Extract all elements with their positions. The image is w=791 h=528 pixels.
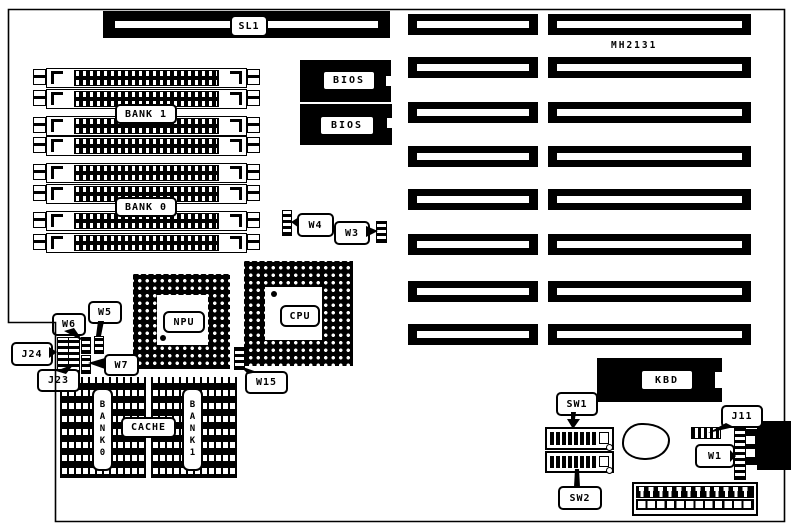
cpu-label: CPU bbox=[280, 305, 320, 327]
simm-clip-icon bbox=[51, 92, 63, 105]
cache-bank0-label: BANK0 bbox=[92, 388, 113, 471]
keyboard-din-connector bbox=[757, 421, 791, 470]
simm-clip-icon bbox=[230, 71, 242, 84]
expansion-slot bbox=[548, 57, 751, 78]
simm-pins bbox=[74, 138, 219, 154]
din-cutout bbox=[746, 449, 755, 457]
simm-clip-icon bbox=[230, 92, 242, 105]
simm-socket bbox=[46, 136, 247, 156]
expansion-slot bbox=[408, 281, 538, 302]
simm-clip-icon bbox=[51, 187, 63, 200]
dip-switch-sw2 bbox=[545, 451, 614, 473]
expansion-slot bbox=[408, 234, 538, 255]
simm-socket bbox=[46, 163, 247, 183]
board-model-text: MH2131 bbox=[611, 40, 657, 51]
dip-curl-icon bbox=[606, 467, 613, 474]
simm-clip-icon bbox=[51, 236, 63, 249]
chip-notch bbox=[386, 76, 391, 86]
oscillator-outline bbox=[622, 423, 670, 460]
expansion-slot bbox=[408, 102, 538, 123]
chip-notch bbox=[715, 372, 722, 388]
simm-pins bbox=[74, 235, 219, 251]
power-connector-pins bbox=[636, 486, 754, 498]
chip-notch bbox=[387, 118, 392, 128]
bank0-label: BANK 0 bbox=[115, 197, 177, 217]
bios-chip-1: BIOS bbox=[300, 60, 391, 102]
expansion-slot bbox=[548, 281, 751, 302]
bank1-label: BANK 1 bbox=[115, 104, 177, 124]
simm-clip-icon bbox=[230, 187, 242, 200]
expansion-slot bbox=[548, 324, 751, 345]
j11-label: J11 bbox=[721, 405, 763, 428]
cache-label: CACHE bbox=[121, 417, 176, 438]
dip-switch-sw1 bbox=[545, 427, 614, 450]
bios2-label: BIOS bbox=[321, 117, 373, 134]
w1-label: W1 bbox=[695, 444, 735, 468]
header-j11 bbox=[691, 427, 721, 439]
simm-clip-icon bbox=[230, 139, 242, 152]
jumper-w15 bbox=[234, 347, 245, 370]
expansion-slot bbox=[408, 146, 538, 167]
jumper-w6 bbox=[81, 337, 91, 354]
npu-pin1-dot bbox=[160, 335, 166, 341]
dip-last-cell bbox=[599, 432, 609, 444]
simm-socket bbox=[46, 233, 247, 253]
simm-clip-icon bbox=[51, 139, 63, 152]
power-connector bbox=[632, 482, 758, 516]
npu-chip: NPU bbox=[133, 274, 230, 369]
w3-label: W3 bbox=[334, 221, 370, 245]
kbd-chip: KBD bbox=[597, 358, 722, 402]
dip-cells bbox=[550, 456, 597, 468]
bios1-label: BIOS bbox=[324, 72, 374, 89]
dip-last-cell bbox=[599, 456, 609, 467]
expansion-slot bbox=[548, 189, 751, 210]
jumper-w7 bbox=[81, 355, 91, 374]
w15-label: W15 bbox=[245, 371, 288, 394]
sw1-label: SW1 bbox=[556, 392, 598, 416]
jumper-w3 bbox=[376, 221, 387, 243]
w7-label: W7 bbox=[104, 354, 139, 376]
dip-cells bbox=[550, 432, 597, 445]
cache-bank1-label: BANK1 bbox=[182, 388, 203, 471]
dip-curl-icon bbox=[606, 444, 613, 451]
simm-clip-icon bbox=[230, 166, 242, 179]
cpu-pin1-dot bbox=[271, 291, 277, 297]
expansion-slot bbox=[548, 14, 751, 35]
kbd-label: KBD bbox=[642, 371, 692, 389]
simm-clip-icon bbox=[51, 214, 63, 227]
expansion-slot bbox=[408, 57, 538, 78]
expansion-slot bbox=[408, 14, 538, 35]
keyboard-din-connector-left bbox=[745, 429, 758, 465]
din-cutout bbox=[746, 436, 755, 444]
expansion-slot bbox=[548, 102, 751, 123]
bios-chip-2: BIOS bbox=[300, 104, 392, 145]
simm-clip-icon bbox=[230, 214, 242, 227]
jumper-w4 bbox=[282, 210, 292, 236]
expansion-slot bbox=[408, 324, 538, 345]
simm-socket bbox=[46, 68, 247, 88]
expansion-slot bbox=[408, 189, 538, 210]
sl1-label: SL1 bbox=[230, 15, 268, 37]
expansion-slot bbox=[548, 234, 751, 255]
simm-clip-icon bbox=[51, 119, 63, 132]
simm-clip-icon bbox=[230, 236, 242, 249]
simm-clip-icon bbox=[51, 71, 63, 84]
w6-label: W6 bbox=[52, 313, 86, 336]
j23-label: J23 bbox=[37, 369, 80, 392]
simm-clip-icon bbox=[230, 119, 242, 132]
power-connector-sockets bbox=[636, 499, 754, 510]
motherboard-diagram: SL1 MH2131 BANK 1 BANK 0 BIOS BIOS W4 W3… bbox=[0, 0, 791, 528]
j24-label: J24 bbox=[11, 342, 53, 366]
w4-label: W4 bbox=[297, 213, 334, 237]
simm-pins bbox=[74, 165, 219, 181]
sw2-label: SW2 bbox=[558, 486, 602, 510]
simm-clip-icon bbox=[51, 166, 63, 179]
w5-label: W5 bbox=[88, 301, 122, 324]
npu-label: NPU bbox=[163, 311, 205, 333]
expansion-slot bbox=[548, 146, 751, 167]
cpu-chip: CPU bbox=[244, 261, 353, 366]
simm-pins bbox=[74, 70, 219, 86]
jumper-w5 bbox=[94, 336, 104, 354]
